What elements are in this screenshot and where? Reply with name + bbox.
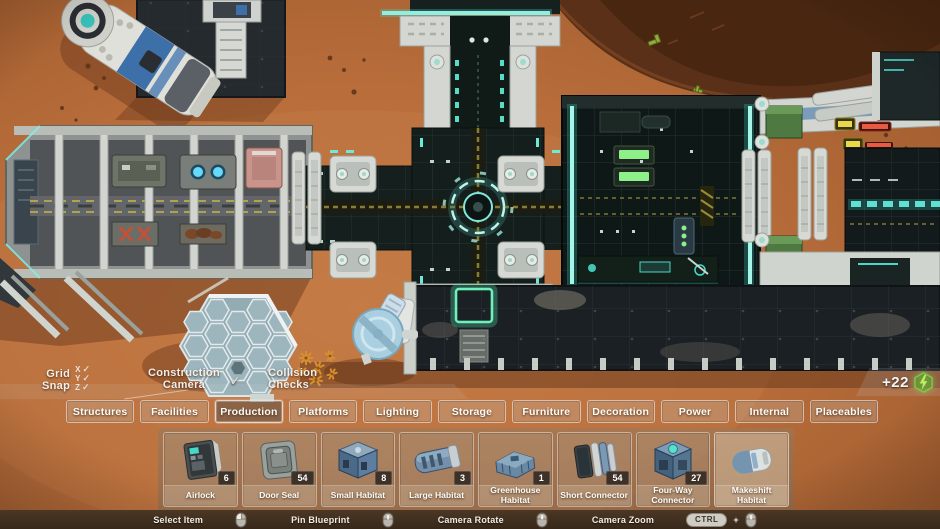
hotkey-keys: [382, 512, 394, 528]
hotkey-camera-zoom: Camera ZoomCTRL+: [592, 512, 757, 528]
tab-storage[interactable]: Storage: [438, 400, 506, 423]
item-label: Small Habitat: [322, 485, 395, 506]
grid-snap-axes: X✓Y✓Z✓: [75, 365, 90, 392]
axis-label: Y: [75, 374, 80, 383]
hotkey-bar: Select ItemPin BlueprintCamera RotateCam…: [0, 510, 940, 529]
item-label: Greenhouse Habitat: [479, 485, 552, 506]
collision-checks-label-2: Checks: [268, 379, 317, 391]
category-tabs: StructuresFacilitiesProductionPlatformsL…: [66, 400, 878, 423]
tab-placeables[interactable]: Placeables: [810, 400, 878, 423]
tab-internal[interactable]: Internal: [735, 400, 803, 423]
hotkey-keys: [235, 512, 247, 528]
collision-checks-toggle[interactable]: Collision Checks: [268, 367, 317, 391]
item-card-short-connector[interactable]: 54Short Connector: [557, 432, 632, 507]
tab-platforms[interactable]: Platforms: [289, 400, 357, 423]
hotkey-label: Camera Rotate: [438, 515, 504, 525]
tab-facilities[interactable]: Facilities: [140, 400, 208, 423]
grid-snap-label-1: Grid: [42, 368, 70, 380]
item-palette: 6Airlock54Door Seal8Small Habitat3Large …: [158, 428, 794, 511]
lightning-icon: [914, 372, 933, 393]
plus-sign: +: [733, 515, 738, 525]
hotkey-keys: [536, 512, 548, 528]
tab-furniture[interactable]: Furniture: [512, 400, 580, 423]
mouse-left-icon: [235, 512, 247, 528]
item-card-four-way-connector[interactable]: 27Four-Way Connector: [636, 432, 711, 507]
mouse-scroll-icon: [745, 512, 757, 528]
hotkey-label: Select Item: [153, 515, 203, 525]
hotkey-pin-blueprint: Pin Blueprint: [291, 512, 394, 528]
tab-decoration[interactable]: Decoration: [587, 400, 655, 423]
item-card-door-seal[interactable]: 54Door Seal: [242, 432, 317, 507]
tab-power[interactable]: Power: [661, 400, 729, 423]
item-label: Four-Way Connector: [637, 485, 710, 506]
tab-structures[interactable]: Structures: [66, 400, 134, 423]
hotkey-keys: CTRL+: [686, 512, 757, 528]
item-count-badge: 1: [533, 471, 550, 485]
construction-camera-label-2: Camera: [148, 379, 220, 391]
mouse-middle-icon: [536, 512, 548, 528]
hotkey-label: Pin Blueprint: [291, 515, 350, 525]
item-label: Makeshift Habitat: [715, 485, 788, 506]
axis-label: X: [75, 365, 80, 374]
item-count-badge: 54: [291, 471, 313, 485]
hotkey-label: Camera Zoom: [592, 515, 654, 525]
item-card-makeshift-habitat[interactable]: Makeshift Habitat: [714, 432, 789, 507]
item-count-badge: 54: [606, 471, 628, 485]
construction-camera-toggle[interactable]: Construction Camera ✓: [148, 367, 240, 391]
item-card-large-habitat[interactable]: 3Large Habitat: [399, 432, 474, 507]
tab-lighting[interactable]: Lighting: [363, 400, 431, 423]
construction-toggles: Grid Snap X✓Y✓Z✓ Construction Camera ✓ C…: [42, 367, 317, 392]
item-label: Short Connector: [558, 485, 631, 506]
item-count-badge: 6: [218, 471, 235, 485]
item-label: Large Habitat: [400, 485, 473, 506]
mouse-middle-icon: [382, 512, 394, 528]
hotkey-select-item: Select Item: [153, 512, 247, 528]
item-count-badge: 8: [375, 471, 392, 485]
item-card-greenhouse-habitat[interactable]: 1Greenhouse Habitat: [478, 432, 553, 507]
checkmark-icon: ✓: [230, 374, 240, 388]
makeshift-habitat-icon: [715, 435, 788, 485]
grid-snap-label-2: Snap: [42, 380, 70, 392]
energy-readout: +22: [856, 368, 940, 396]
collision-checks-label-1: Collision: [268, 367, 317, 379]
item-label: Door Seal: [243, 485, 316, 506]
item-card-small-habitat[interactable]: 8Small Habitat: [321, 432, 396, 507]
hotkey-camera-rotate: Camera Rotate: [438, 512, 548, 528]
item-count-badge: 3: [454, 471, 471, 485]
item-card-airlock[interactable]: 6Airlock: [163, 432, 238, 507]
item-label: Airlock: [164, 485, 237, 506]
construction-camera-label-1: Construction: [148, 367, 220, 379]
ctrl-key: CTRL: [686, 513, 727, 527]
checkmark-icon: ✓: [82, 383, 90, 392]
item-count-badge: 27: [685, 471, 707, 485]
energy-value: +22: [882, 374, 909, 391]
tab-production[interactable]: Production: [215, 400, 283, 423]
axis-label: Z: [75, 383, 80, 392]
grid-snap-toggle[interactable]: Grid Snap X✓Y✓Z✓: [42, 367, 90, 392]
grid-snap-axis-z[interactable]: Z✓: [75, 383, 90, 392]
